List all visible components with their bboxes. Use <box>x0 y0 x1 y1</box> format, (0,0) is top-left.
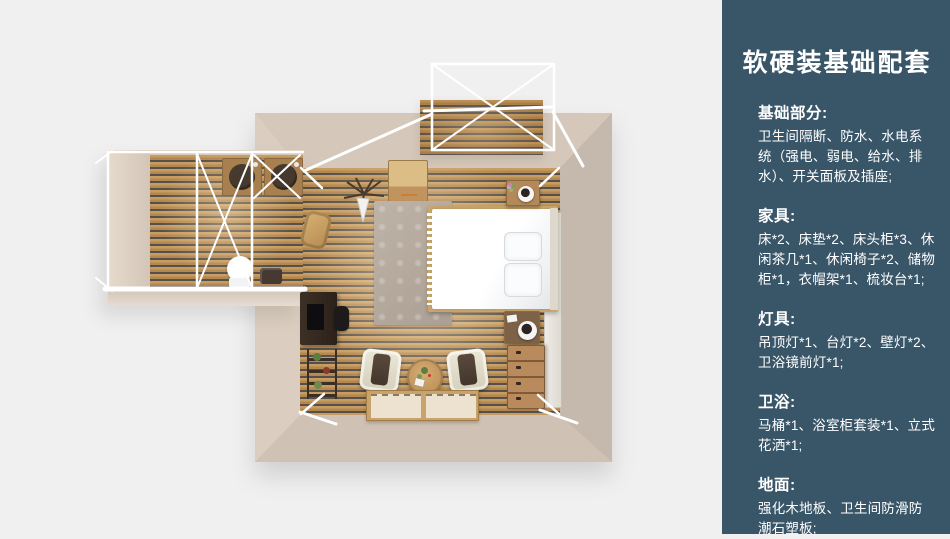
lounge-chair-right <box>446 348 490 393</box>
section-heading: 基础部分: <box>758 101 936 123</box>
plant-icon <box>314 381 322 389</box>
bathroom-wall <box>108 150 150 290</box>
mat <box>426 394 476 418</box>
sink-basin-icon <box>229 164 255 190</box>
section-heading: 卫浴: <box>758 390 936 412</box>
toiletries <box>260 268 282 284</box>
table-lamp-icon <box>518 321 537 340</box>
storage-cabinet <box>388 160 428 203</box>
section-flooring: 地面: 强化木地板、卫生间防滑防潮石塑板; <box>758 473 936 539</box>
plant-icon <box>421 367 428 374</box>
desk-chair <box>334 306 349 331</box>
section-heading: 家具: <box>758 204 936 226</box>
cabinet-handle <box>401 194 417 196</box>
chair-cushion <box>457 353 478 386</box>
plant-icon <box>313 353 321 361</box>
section-heading: 地面: <box>758 473 936 495</box>
hanging-cloth <box>357 198 369 222</box>
bathroom-area <box>108 150 303 308</box>
vanity-sink-right <box>264 158 303 196</box>
flower-vase-icon <box>508 183 512 187</box>
section-body: 卫生间隔断、防水、水电系统（强电、弱电、给水、排水）、开关面板及插座; <box>758 127 936 187</box>
headboard <box>550 208 558 310</box>
tatami-mats <box>366 390 479 421</box>
papers <box>507 314 518 322</box>
faucet-icon <box>294 162 299 167</box>
pillow <box>504 232 542 261</box>
info-sidebar: 软硬装基础配套 基础部分: 卫生间隔断、防水、水电系统（强电、弱电、给水、排水）… <box>722 0 950 534</box>
section-heading: 灯具: <box>758 307 936 329</box>
dresser <box>507 345 545 409</box>
faucet-icon <box>253 162 258 167</box>
mat <box>371 394 421 418</box>
section-body: 床*2、床垫*2、床头柜*3、休闲茶几*1、休闲椅子*2、储物柜*1，衣帽架*1… <box>758 230 936 290</box>
papers <box>414 378 424 387</box>
table-lamp-icon <box>518 186 534 202</box>
section-lighting: 灯具: 吊顶灯*1、台灯*2、壁灯*2、卫浴镜前灯*1; <box>758 307 936 373</box>
section-body: 马桶*1、浴室柜套装*1、立式花洒*1; <box>758 416 936 456</box>
sink-basin-icon <box>271 164 297 190</box>
section-furniture: 家具: 床*2、床垫*2、床头柜*3、休闲茶几*1、休闲椅子*2、储物柜*1，衣… <box>758 204 936 290</box>
lounge-chair-left <box>359 348 403 393</box>
section-bathroom: 卫浴: 马桶*1、浴室柜套装*1、立式花洒*1; <box>758 390 936 456</box>
sidebar-title: 软硬装基础配套 <box>734 48 940 78</box>
section-body: 强化木地板、卫生间防滑防潮石塑板; <box>758 499 936 539</box>
chair-cushion <box>370 353 391 386</box>
pillow <box>504 263 542 297</box>
desk <box>300 292 337 345</box>
balcony-area <box>420 100 543 155</box>
toilet-tank <box>229 278 250 287</box>
page: { "page": {"background_color": "#f0f0f0"… <box>0 0 950 534</box>
section-basics: 基础部分: 卫生间隔断、防水、水电系统（强电、弱电、给水、排水）、开关面板及插座… <box>758 101 936 187</box>
plant-icon <box>323 367 330 374</box>
bathroom-exterior-ground <box>108 290 303 306</box>
laptop-icon <box>307 304 324 330</box>
vanity-sink-left <box>222 158 262 196</box>
plant-shelf <box>307 349 337 399</box>
section-body: 吊顶灯*1、台灯*2、壁灯*2、卫浴镜前灯*1; <box>758 333 936 373</box>
bed <box>428 206 558 312</box>
